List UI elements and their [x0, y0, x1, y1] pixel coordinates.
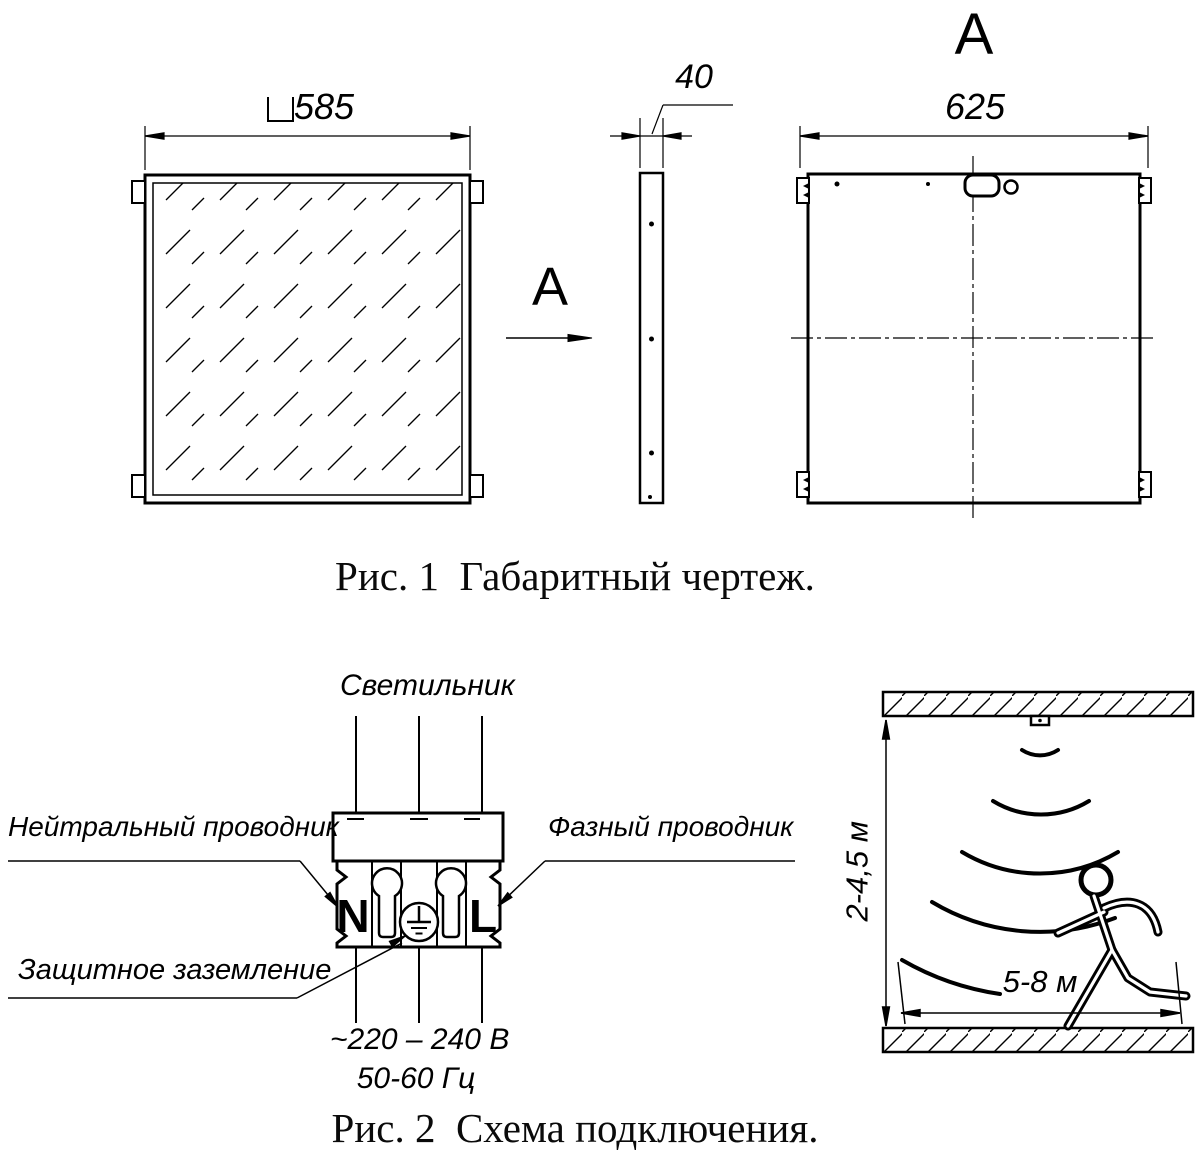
- rear-width-dimension: [800, 126, 1148, 168]
- protective-earth-label: Защитное заземление: [18, 955, 300, 985]
- running-person-icon: [1058, 865, 1186, 1026]
- section-view-arrow: [506, 335, 592, 342]
- sensor-dot: [1038, 719, 1042, 723]
- section-arrow-letter: А: [526, 260, 574, 314]
- luminaire-label: Светильник: [340, 670, 496, 702]
- phase-conductor-label: Фазный проводник: [548, 812, 774, 841]
- dim-arrow: [145, 133, 164, 139]
- side-thickness-dimension: [610, 105, 733, 168]
- dim-arrow: [451, 133, 470, 139]
- rivet-dot: [649, 451, 654, 456]
- drawing-sheet: 585 40 625 А А Рис. 1 Габаритный чертеж.…: [0, 0, 1200, 1161]
- terminal-block-upper: [333, 813, 503, 861]
- detection-distance-dim-text: 5-8 м: [994, 966, 1086, 999]
- mount-clip: [132, 475, 145, 497]
- supply-voltage-label: ~220 – 240 В: [330, 1024, 502, 1056]
- rivet-dot: [649, 337, 654, 342]
- mount-clip: [797, 472, 809, 497]
- mount-clip: [470, 181, 483, 203]
- mount-clip: [470, 475, 483, 497]
- ceiling: [883, 692, 1193, 716]
- cable-entry: [965, 175, 999, 196]
- mount-height-dimension: [883, 720, 890, 1026]
- square-section-symbol: [268, 97, 293, 121]
- mount-clip: [1139, 472, 1151, 497]
- mount-clip: [1139, 178, 1151, 203]
- supply-wires: [356, 947, 482, 1023]
- rear-view-title-letter: А: [942, 6, 1006, 64]
- rivet-dot: [835, 182, 840, 187]
- rivet-dot: [649, 222, 654, 227]
- terminal-l-letter: L: [467, 893, 499, 939]
- figure1-caption: Рис. 1 Габаритный чертеж.: [175, 554, 975, 599]
- supply-frequency-label: 50-60 Гц: [342, 1063, 490, 1095]
- dim-arrow: [883, 720, 890, 739]
- leader-line: [652, 105, 663, 134]
- front-width-dim-text: 585: [293, 88, 355, 126]
- terminal-n-letter: N: [336, 893, 370, 939]
- neutral-leader: [8, 861, 338, 907]
- side-view: [640, 173, 663, 503]
- rivet-dot: [926, 182, 930, 186]
- mount-clip: [132, 181, 145, 203]
- figure2-caption: Рис. 2 Схема подключения.: [175, 1106, 975, 1151]
- dim-arrow: [1161, 1010, 1180, 1017]
- front-view: [132, 175, 483, 503]
- front-glass-panel: [153, 183, 462, 495]
- cable-hole: [1005, 181, 1018, 194]
- luminaire-wires: [356, 716, 482, 813]
- dim-arrow: [622, 133, 640, 139]
- side-thickness-dim-text: 40: [670, 60, 718, 96]
- dim-arrow: [1129, 133, 1148, 139]
- rear-view: [791, 156, 1155, 520]
- dim-arrow: [663, 133, 681, 139]
- dim-arrow: [883, 1007, 890, 1026]
- arrow-head: [568, 335, 592, 342]
- floor: [883, 1028, 1193, 1052]
- neutral-conductor-label: Нейтральный проводник: [8, 812, 300, 841]
- mount-height-dim-text: 2-4,5 м: [842, 810, 875, 932]
- rear-width-dim-text: 625: [944, 88, 1006, 126]
- dim-arrow: [800, 133, 819, 139]
- rivet-dot: [648, 495, 652, 499]
- phase-leader: [498, 861, 795, 906]
- mount-clip: [797, 178, 809, 203]
